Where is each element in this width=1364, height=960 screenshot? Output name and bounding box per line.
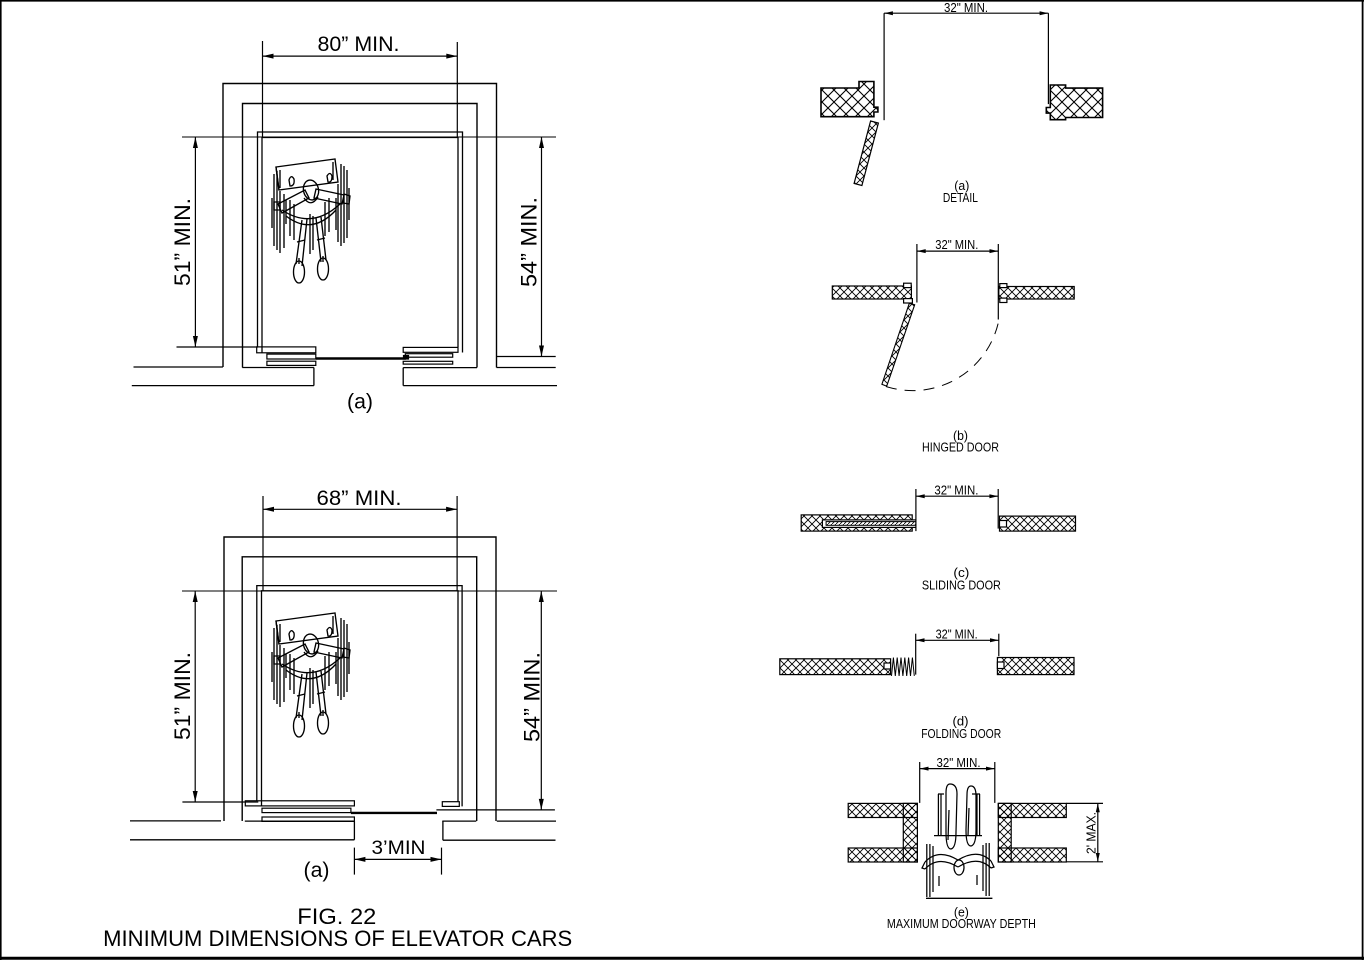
svg-text:54” MIN.: 54” MIN. (517, 197, 542, 287)
svg-text:68” MIN.: 68” MIN. (317, 487, 402, 510)
svg-text:(a): (a) (347, 391, 373, 414)
svg-text:MAXIMUM DOORWAY DEPTH: MAXIMUM DOORWAY DEPTH (887, 917, 1036, 931)
svg-text:51” MIN.: 51” MIN. (170, 198, 195, 286)
svg-text:2' MAX.: 2' MAX. (1085, 812, 1099, 854)
svg-text:SLIDING DOOR: SLIDING DOOR (922, 579, 1001, 593)
svg-text:MINIMUM DIMENSIONS OF ELEVA: MINIMUM DIMENSIONS OF ELEVATOR CARS (103, 926, 572, 951)
svg-text:(a): (a) (304, 859, 330, 882)
svg-text:32" MIN.: 32" MIN. (934, 484, 978, 498)
svg-text:54” MIN.: 54” MIN. (520, 652, 545, 742)
svg-text:(c): (c) (953, 565, 969, 580)
svg-text:32" MIN.: 32" MIN. (936, 628, 978, 642)
svg-text:3’MIN: 3’MIN (372, 838, 426, 859)
svg-text:FOLDING DOOR: FOLDING DOOR (921, 727, 1001, 741)
svg-text:32" MIN.: 32" MIN. (944, 1, 988, 15)
svg-text:DETAIL: DETAIL (943, 191, 978, 205)
svg-text:51” MIN.: 51” MIN. (170, 652, 195, 740)
svg-text:80” MIN.: 80” MIN. (318, 33, 400, 56)
svg-text:32" MIN.: 32" MIN. (937, 756, 981, 770)
svg-text:32" MIN.: 32" MIN. (935, 238, 978, 252)
svg-text:HINGED DOOR: HINGED DOOR (922, 441, 999, 455)
